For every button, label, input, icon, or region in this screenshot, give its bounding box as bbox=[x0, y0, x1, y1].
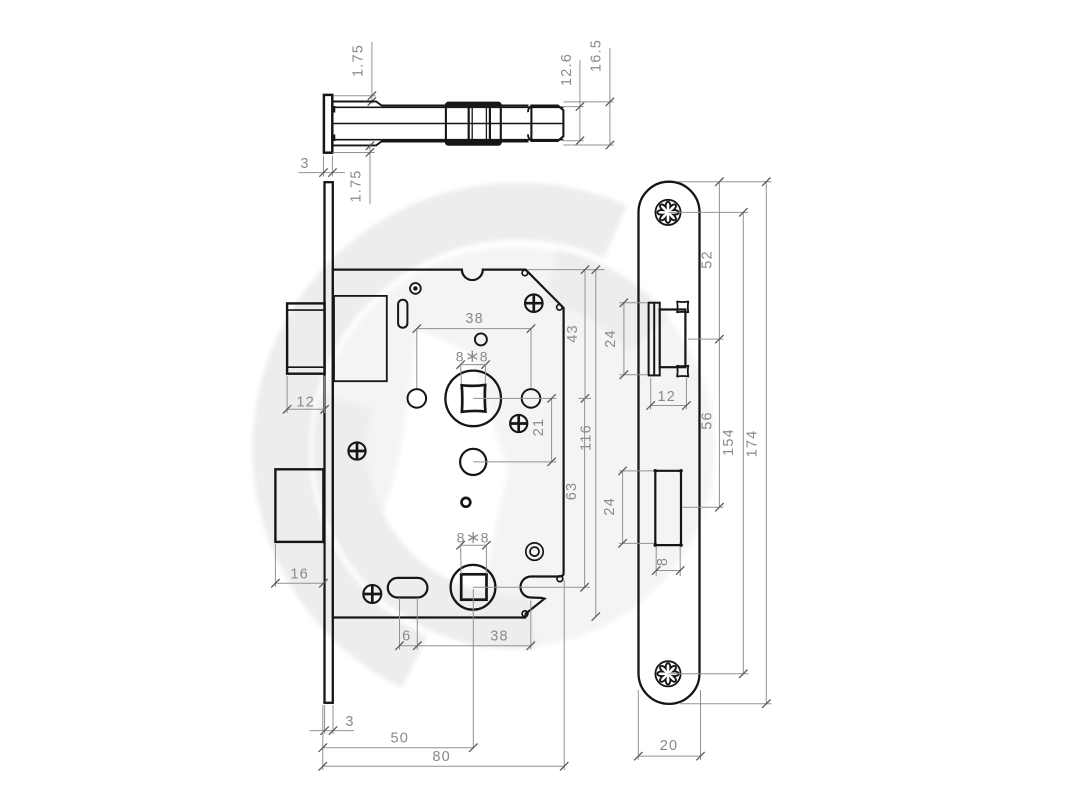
svg-text:8: 8 bbox=[457, 530, 466, 546]
svg-text:8: 8 bbox=[655, 557, 671, 566]
svg-text:24: 24 bbox=[603, 329, 619, 348]
svg-text:116: 116 bbox=[578, 424, 594, 451]
svg-text:21: 21 bbox=[531, 418, 547, 437]
svg-text:1.75: 1.75 bbox=[349, 169, 365, 202]
svg-text:63: 63 bbox=[564, 482, 580, 501]
svg-text:12: 12 bbox=[658, 389, 677, 405]
svg-text:43: 43 bbox=[565, 324, 581, 343]
svg-text:38: 38 bbox=[490, 629, 509, 645]
svg-text:3: 3 bbox=[300, 156, 309, 172]
svg-text:20: 20 bbox=[660, 738, 679, 754]
svg-text:3: 3 bbox=[345, 714, 354, 730]
svg-text:52: 52 bbox=[700, 250, 716, 269]
svg-text:12.6: 12.6 bbox=[559, 53, 575, 86]
svg-text:38: 38 bbox=[465, 311, 484, 327]
svg-text:6: 6 bbox=[402, 629, 411, 645]
svg-text:154: 154 bbox=[721, 428, 737, 456]
svg-text:24: 24 bbox=[602, 497, 618, 516]
svg-text:174: 174 bbox=[745, 430, 761, 458]
svg-text:1.75: 1.75 bbox=[351, 44, 367, 77]
svg-text:16.5: 16.5 bbox=[589, 39, 605, 72]
svg-text:56: 56 bbox=[700, 411, 716, 430]
svg-text:16: 16 bbox=[290, 566, 309, 582]
svg-text:12: 12 bbox=[297, 394, 316, 410]
svg-text:50: 50 bbox=[391, 731, 410, 747]
svg-text:80: 80 bbox=[432, 749, 451, 765]
